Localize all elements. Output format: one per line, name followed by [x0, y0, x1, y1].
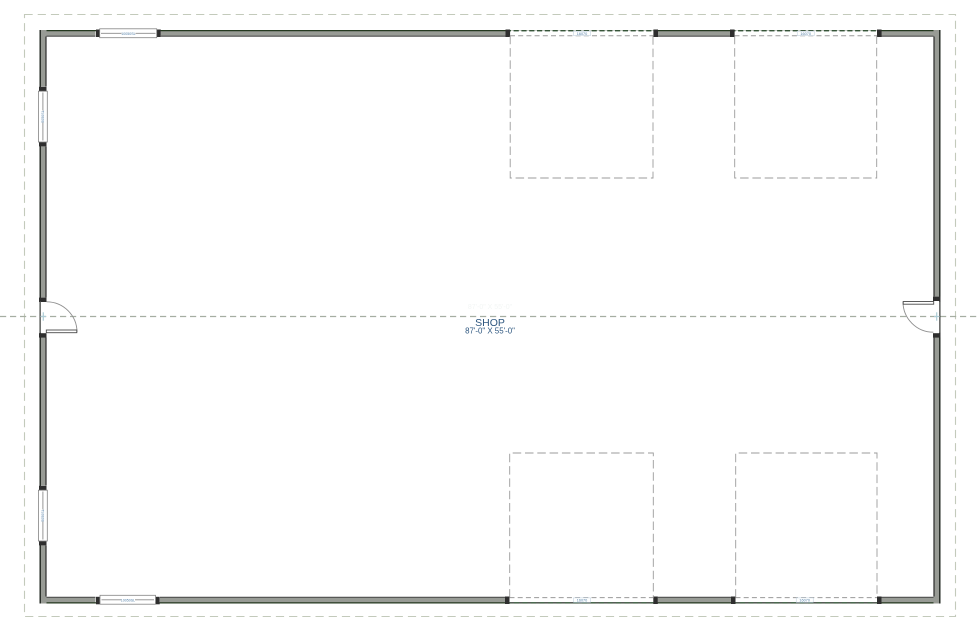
svg-text:87'-0" X 55'-0": 87'-0" X 55'-0" — [468, 304, 513, 311]
svg-text:10050SL: 10050SL — [121, 32, 135, 36]
svg-text:16070: 16070 — [800, 32, 811, 36]
svg-text:5050SL: 5050SL — [41, 110, 45, 122]
svg-text:16070: 16070 — [799, 599, 810, 603]
svg-text:87'-0" X 55'-0": 87'-0" X 55'-0" — [465, 326, 515, 335]
svg-text:10050SL: 10050SL — [121, 599, 135, 603]
svg-text:16070: 16070 — [577, 599, 588, 603]
svg-text:5050SL: 5050SL — [41, 509, 45, 521]
svg-text:16070: 16070 — [577, 32, 588, 36]
